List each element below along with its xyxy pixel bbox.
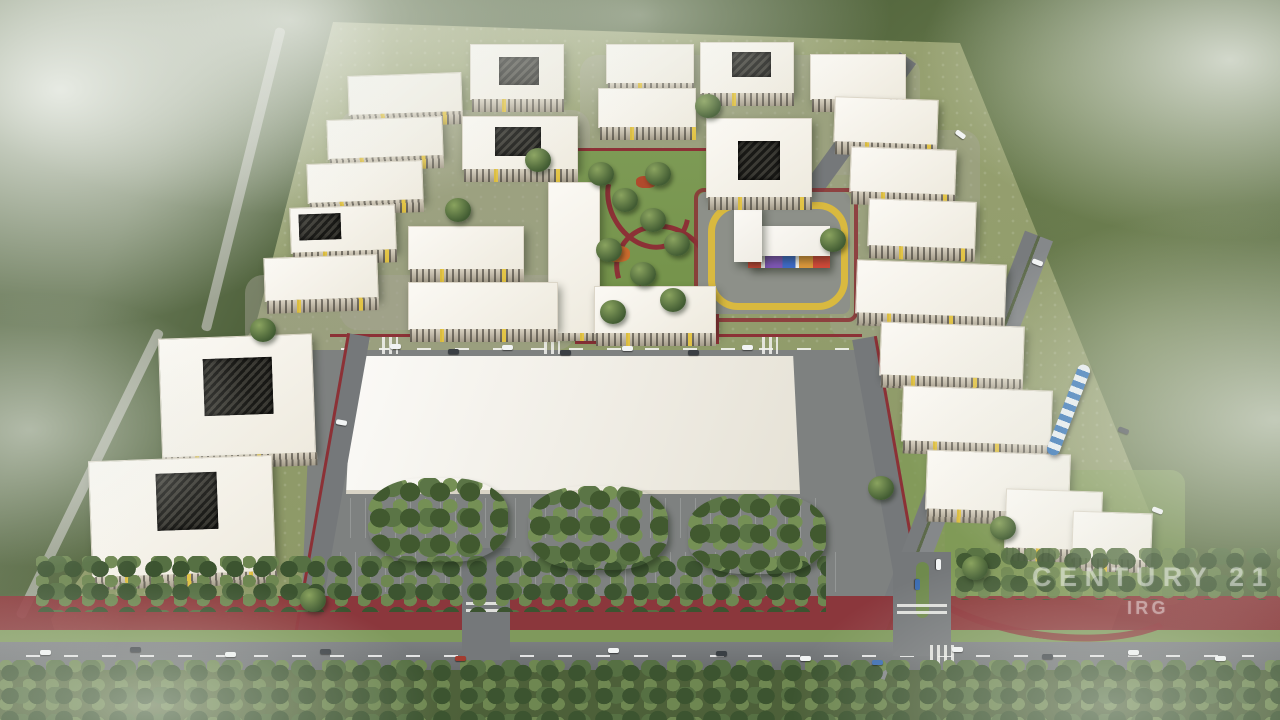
tree-cluster <box>688 494 826 574</box>
car <box>716 651 727 656</box>
apartment-block <box>408 282 558 330</box>
car <box>952 647 963 652</box>
inner-courtyard <box>499 57 539 85</box>
apartment-block <box>849 146 957 196</box>
courtyard-block <box>289 204 397 254</box>
car <box>225 652 236 657</box>
tree <box>664 232 690 256</box>
car <box>1128 650 1139 655</box>
courtyard-block <box>470 44 564 100</box>
courtyard-block <box>462 116 578 170</box>
car <box>320 649 331 654</box>
tree <box>695 94 721 118</box>
apartment-block <box>306 160 423 204</box>
apartment-block <box>855 259 1007 318</box>
apartment-block <box>810 54 906 100</box>
car <box>560 350 571 355</box>
tree-row <box>955 548 1280 600</box>
apartment-block <box>879 322 1025 381</box>
apartment-block <box>901 385 1053 446</box>
car <box>608 648 619 653</box>
apartment-block <box>606 44 694 84</box>
car <box>390 344 401 349</box>
inner-courtyard <box>732 52 771 77</box>
apartment-block <box>833 96 939 146</box>
tree <box>868 476 894 500</box>
tree <box>630 262 656 286</box>
apartment-block <box>263 254 378 302</box>
tree <box>660 288 686 312</box>
apartment-block <box>867 198 977 250</box>
tree <box>962 556 988 580</box>
apartment-block <box>347 72 462 116</box>
tree <box>596 238 622 262</box>
tree <box>820 228 846 252</box>
car <box>915 579 920 590</box>
kindergarten-wing <box>734 204 762 262</box>
car <box>688 350 699 355</box>
tree <box>445 198 471 222</box>
tree <box>612 188 638 212</box>
tree <box>250 318 276 342</box>
tree <box>640 208 666 232</box>
inner-courtyard <box>299 213 341 240</box>
crosswalk <box>762 337 778 354</box>
courtyard-block <box>158 333 316 458</box>
inner-courtyard <box>202 357 274 416</box>
tree-cluster <box>368 478 508 562</box>
retail-building <box>346 356 800 494</box>
tree-cluster <box>528 486 668 570</box>
tree <box>645 162 671 186</box>
tree <box>990 516 1016 540</box>
car <box>130 647 141 652</box>
car <box>1042 654 1053 659</box>
courtyard-block <box>706 118 812 198</box>
tree <box>300 588 326 612</box>
tree <box>588 162 614 186</box>
tree <box>600 300 626 324</box>
aerial-render: CENTURY 21 IRG <box>0 0 1280 720</box>
car <box>1215 656 1226 661</box>
car <box>742 345 753 350</box>
car <box>800 656 811 661</box>
crosswalk <box>897 600 947 614</box>
car <box>40 650 51 655</box>
courtyard-block <box>700 42 794 94</box>
car <box>872 660 883 665</box>
car <box>622 346 633 351</box>
tree <box>525 148 551 172</box>
tree-row <box>0 660 1280 720</box>
car <box>448 349 459 354</box>
apartment-block <box>408 226 524 270</box>
car <box>936 559 941 570</box>
inner-courtyard <box>155 472 219 532</box>
inner-courtyard <box>738 141 780 180</box>
car <box>502 345 513 350</box>
car <box>455 656 466 661</box>
apartment-block <box>598 88 696 128</box>
apartment-block <box>326 116 443 160</box>
